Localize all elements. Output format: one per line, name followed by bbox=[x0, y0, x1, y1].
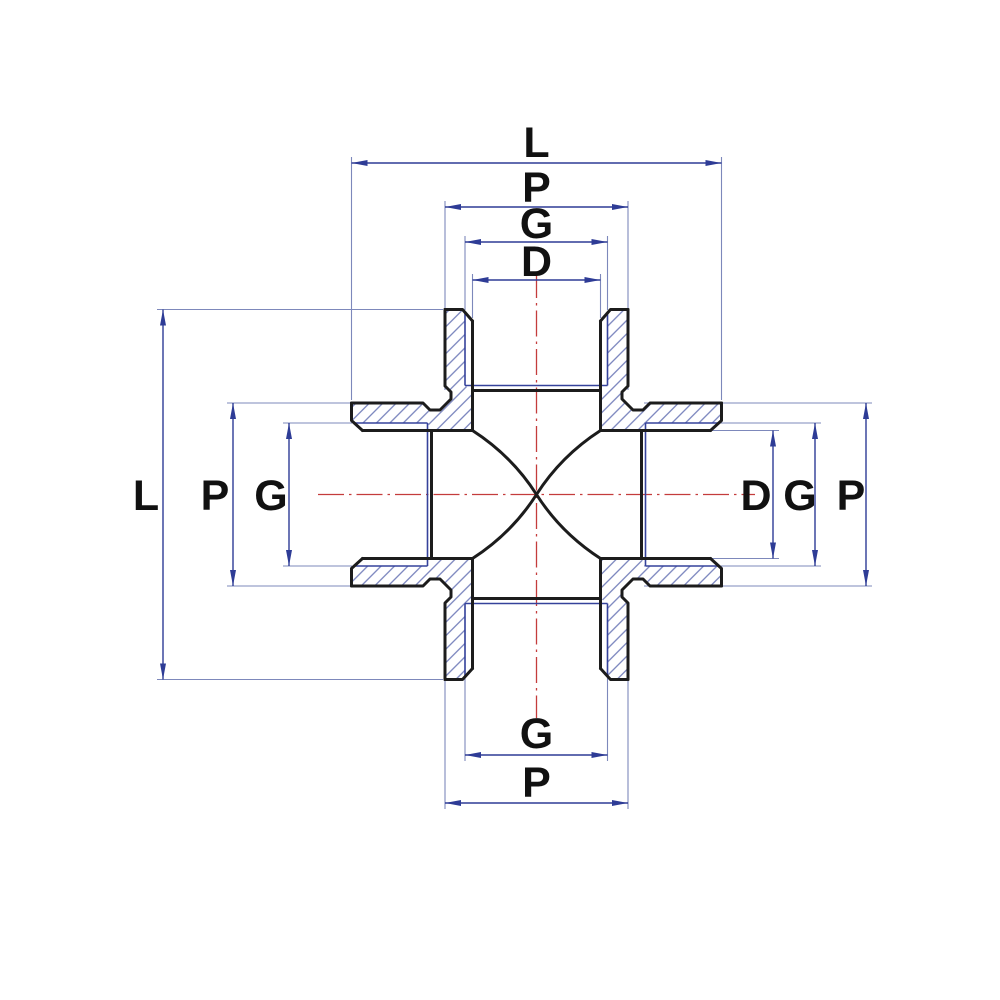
label-top-D: D bbox=[521, 238, 552, 286]
outer-profile-top-right bbox=[622, 310, 722, 411]
label-bottom-G: G bbox=[520, 710, 553, 758]
label-bottom-P: P bbox=[522, 759, 551, 807]
label-right-G: G bbox=[783, 472, 816, 520]
outer-profile-bottom-left bbox=[352, 579, 452, 680]
label-left-L: L bbox=[133, 472, 159, 520]
label-right-P: P bbox=[837, 472, 866, 520]
label-right-D: D bbox=[740, 472, 771, 520]
outer-profile-top-left bbox=[352, 310, 452, 411]
hatch-quadrant-bottom-left bbox=[352, 559, 473, 680]
hatch-quadrant-top-right bbox=[601, 310, 722, 431]
hatch-quadrant-bottom-right bbox=[601, 559, 722, 680]
hatch-quadrant-top-left bbox=[352, 310, 473, 431]
drawing-page: L P G D L P G D G P G P bbox=[0, 0, 1000, 1000]
dimension-labels: L P G D L P G D G P G P bbox=[133, 119, 865, 807]
outer-profile-bottom-right bbox=[622, 579, 722, 680]
label-left-G: G bbox=[254, 472, 287, 520]
label-left-P: P bbox=[201, 472, 230, 520]
cross-fitting-technical-drawing: L P G D L P G D G P G P bbox=[0, 0, 1000, 1000]
label-top-L: L bbox=[523, 119, 549, 167]
